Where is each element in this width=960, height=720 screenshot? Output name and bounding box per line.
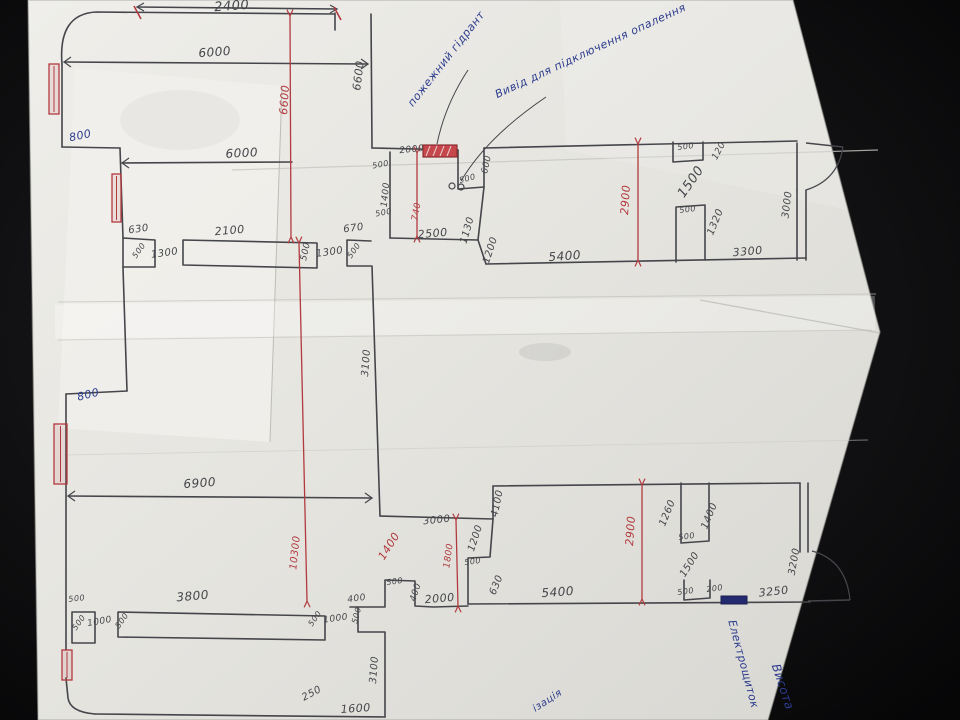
wall-line bbox=[122, 162, 292, 163]
dimension-label: 2500 bbox=[417, 226, 448, 242]
dimension-label: 3100 bbox=[360, 349, 373, 377]
dimension-label: 2900 bbox=[618, 184, 633, 215]
dimension-label: 2400 bbox=[214, 0, 250, 15]
dimension-label: 3800 bbox=[176, 588, 210, 605]
photo-canvas: 2400600066006600пожежний гідрантВивід дл… bbox=[0, 0, 960, 720]
dimension-label: 3100 bbox=[368, 656, 381, 684]
door-swing-arc bbox=[812, 551, 850, 600]
dimension-label: 1600 bbox=[340, 701, 371, 716]
dimension-label: 6600 bbox=[277, 84, 292, 115]
dimension-label: 6000 bbox=[198, 44, 231, 60]
electrical-panel-box bbox=[721, 596, 747, 604]
wall-line bbox=[371, 14, 372, 148]
dimension-label: 3300 bbox=[732, 244, 763, 260]
dimension-label: 2900 bbox=[623, 515, 638, 546]
dimension-label: 2100 bbox=[214, 223, 245, 239]
dimension-label: 5400 bbox=[541, 584, 574, 600]
dimension-label: 5400 bbox=[548, 248, 581, 264]
dimension-label: 6000 bbox=[225, 145, 258, 161]
dimension-label: 500 bbox=[68, 593, 86, 604]
dimension-label: 2000 bbox=[424, 591, 455, 607]
dimension-label: 6900 bbox=[183, 475, 216, 491]
wall-line bbox=[62, 147, 120, 148]
floor-plan-photo: 2400600066006600пожежний гідрантВивід дл… bbox=[0, 0, 960, 720]
door-leaf bbox=[808, 600, 850, 601]
